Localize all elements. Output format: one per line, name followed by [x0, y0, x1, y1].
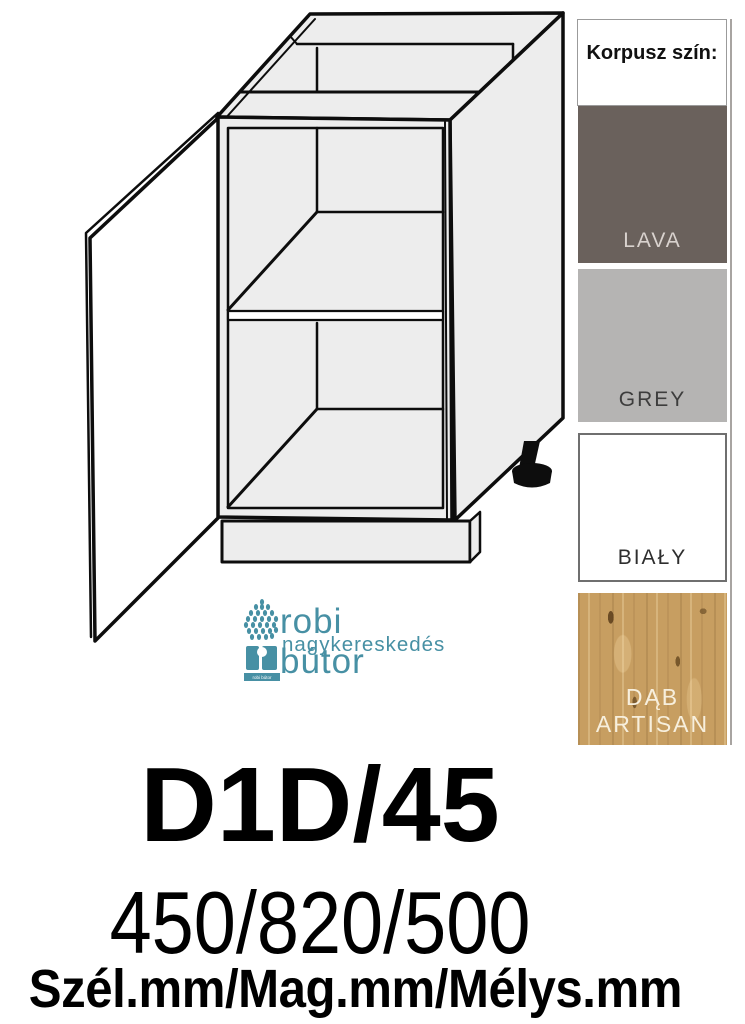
swatch-bialy: BIAŁY — [578, 433, 727, 582]
cabinet-plinth — [222, 512, 480, 562]
swatch-label: BIAŁY — [580, 546, 725, 570]
logo-mark-caption: robi bútor — [252, 675, 272, 680]
logo-tree-icon: robi bútor — [240, 598, 284, 682]
product-code: D1D/45 — [0, 752, 640, 858]
swatch-grey: GREY — [578, 269, 727, 422]
swatch-panel-border — [730, 19, 732, 745]
swatch-label: GREY — [578, 388, 727, 412]
swatch-panel-header: Korpusz szín: — [577, 19, 727, 106]
cabinet-door — [86, 113, 218, 641]
cabinet-shelf — [228, 311, 443, 320]
product-dimensions: 450/820/500 — [45, 879, 595, 967]
swatch-lava: LAVA — [578, 106, 727, 263]
dimensions-legend: Szél.mm/Mag.mm/Mélys.mm — [29, 962, 611, 1016]
swatch-label: DĄB ARTISAN — [578, 684, 727, 737]
swatch-dab-artisan: DĄB ARTISAN — [578, 593, 727, 745]
cabinet-drawing — [0, 0, 600, 700]
product-sheet: robi bútor robi bútor nagykereskedés Kor… — [0, 0, 745, 1024]
swatch-label: LAVA — [578, 229, 727, 253]
logo-subtitle: nagykereskedés — [282, 633, 445, 657]
